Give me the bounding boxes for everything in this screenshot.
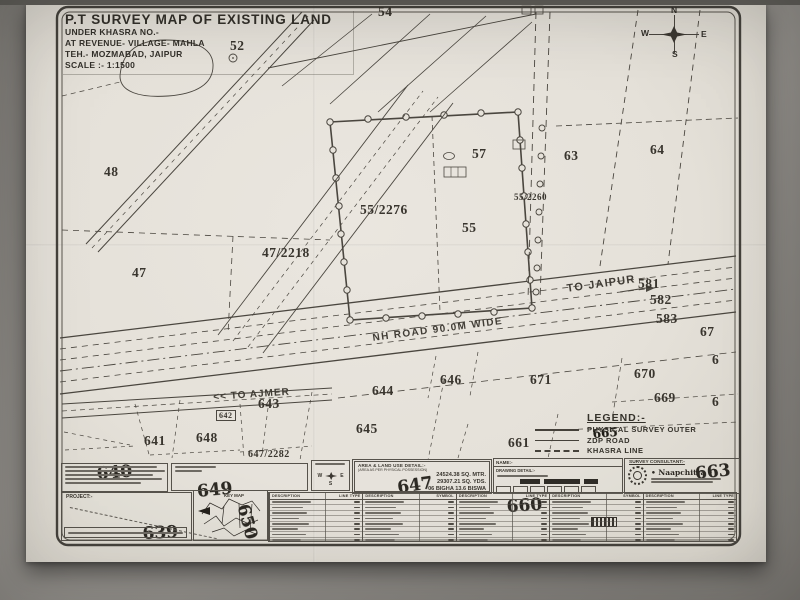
mini-compass-south: S <box>312 481 349 487</box>
survey-consultant-box: SURVEY CONSULTANT:- • Naapchitra • <box>624 458 740 494</box>
spec-table-section: DESCRIPTIONSYMBOL <box>549 493 642 541</box>
legend-item: PHYSICAL SURVEY OUTER <box>535 425 739 435</box>
key-map-box: KEY MAP <box>193 490 268 541</box>
table-row <box>457 538 549 541</box>
compass-east-label: E <box>701 29 707 39</box>
area-value-sqmtr: 24524.38 SQ. MTR. <box>358 472 486 479</box>
photo-of-survey-map: { "title_block": { "lines": [ "P.T SURVE… <box>0 0 800 600</box>
legend-item: ZDP ROAD <box>535 436 739 446</box>
legend-line-sample <box>535 429 579 431</box>
title-line: TEH.- MOZMABAD, JAIPUR <box>65 49 349 60</box>
mini-compass-star-icon <box>325 472 337 480</box>
title-line: AT REVENUE- VILLAGE- MAHLA <box>65 38 349 49</box>
spec-table-section: DESCRIPTIONSYMBOL <box>362 493 455 541</box>
compass-west-label: W <box>641 28 649 38</box>
compass-south-label: S <box>672 49 678 59</box>
table-header: SYMBOL <box>436 494 453 498</box>
compass-rose-icon: N W E S <box>641 7 707 61</box>
table-header: DESCRIPTION <box>272 494 300 498</box>
spec-table-section: DESCRIPTIONLINE TYPE <box>643 493 736 541</box>
name-label: NAME:- <box>494 459 622 467</box>
table-header: DESCRIPTION <box>552 494 580 498</box>
legend-line-sample <box>535 440 579 441</box>
footer-strip <box>64 527 187 538</box>
spec-tables: DESCRIPTIONLINE TYPEDESCRIPTIONSYMBOLDES… <box>268 492 737 542</box>
project-box: PROJECT:- <box>61 492 192 541</box>
area-land-use-box: AREA & LAND USE DETAIL:- (AREA AS PER PH… <box>352 459 492 494</box>
mini-compass-west: W <box>317 473 322 479</box>
table-row <box>363 538 455 541</box>
title-line: UNDER KHASRA NO.- <box>65 27 349 38</box>
area-value-sqyds: 29307.21 SQ. YDS. <box>358 479 486 486</box>
legend: LEGEND:- PHYSICAL SURVEY OUTERZDP ROADKH… <box>535 412 739 456</box>
title-line: SCALE :- 1:1500 <box>65 60 349 71</box>
drawing-detail-label: DRAWING DETAIL:- <box>494 467 622 473</box>
legend-title: LEGEND:- <box>587 412 739 424</box>
notes-box <box>61 463 168 492</box>
legend-label: ZDP ROAD <box>587 436 630 445</box>
compass-north-label: N <box>671 5 677 15</box>
key-map-sketch <box>194 494 265 539</box>
legend-rows: PHYSICAL SURVEY OUTERZDP ROADKHASRA LINE <box>535 425 739 456</box>
scale-bars <box>520 479 622 484</box>
title-block: P.T SURVEY MAP OF EXISTING LANDUNDER KHA… <box>63 11 354 75</box>
name-drawing-box: NAME:- DRAWING DETAIL:- <box>493 458 623 494</box>
mini-compass-box: W E S <box>311 460 350 491</box>
table-header: DESCRIPTION <box>646 494 674 498</box>
table-row <box>550 538 642 541</box>
spec-table-section: DESCRIPTIONLINE TYPE <box>456 493 549 541</box>
project-label: PROJECT:- <box>62 493 191 500</box>
table-header: DESCRIPTION <box>459 494 487 498</box>
table-header: LINE TYPE <box>339 494 360 498</box>
legend-item: KHASRA LINE <box>535 446 739 456</box>
compass-star-icon <box>661 26 687 43</box>
table-header: LINE TYPE <box>713 494 734 498</box>
table-header: LINE TYPE <box>526 494 547 498</box>
legend-label: KHASRA LINE <box>587 446 643 455</box>
title-line: P.T SURVEY MAP OF EXISTING LAND <box>65 12 349 27</box>
spec-table-section: DESCRIPTIONLINE TYPE <box>269 493 362 541</box>
table-header: DESCRIPTION <box>365 494 393 498</box>
table-header: SYMBOL <box>623 494 640 498</box>
legend-label: PHYSICAL SURVEY OUTER <box>587 425 696 434</box>
mini-compass-east: E <box>340 473 343 479</box>
consultant-gear-logo-icon <box>628 466 647 485</box>
consultant-brand: • Naapchitra • <box>651 468 721 477</box>
legend-line-sample <box>535 450 579 452</box>
table-row <box>644 538 736 541</box>
blank-box <box>171 463 308 491</box>
table-row <box>270 538 362 541</box>
